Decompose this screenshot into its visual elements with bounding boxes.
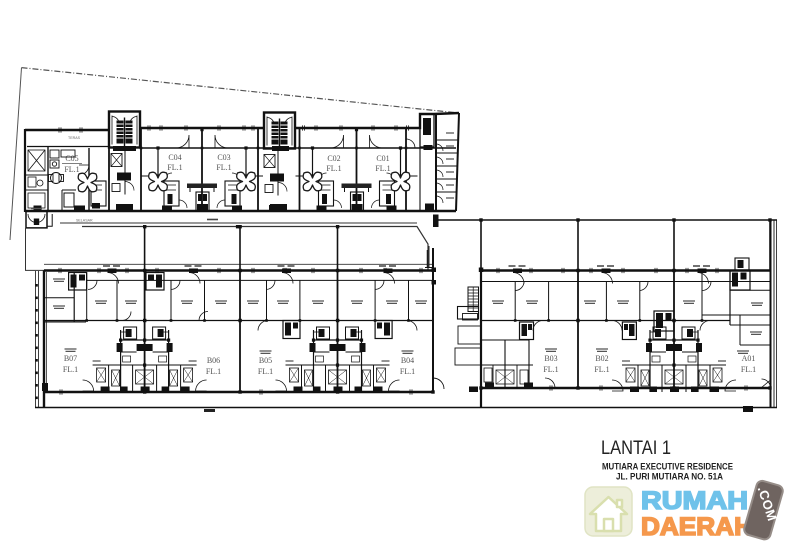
svg-text:B07: B07 xyxy=(64,354,77,363)
svg-text:FL.1: FL.1 xyxy=(594,365,609,374)
svg-text:C02: C02 xyxy=(327,154,340,163)
svg-text:FL.1: FL.1 xyxy=(375,164,390,173)
svg-text:A01: A01 xyxy=(742,354,756,363)
svg-text:FL.1: FL.1 xyxy=(400,367,415,376)
svg-text:FL.1: FL.1 xyxy=(64,165,79,174)
svg-text:TERAS: TERAS xyxy=(68,136,81,140)
svg-text:C05: C05 xyxy=(65,154,78,163)
svg-text:SELASAR: SELASAR xyxy=(76,219,93,223)
svg-text:B03: B03 xyxy=(544,354,557,363)
svg-text:C03: C03 xyxy=(217,153,230,162)
svg-text:B06: B06 xyxy=(207,356,220,365)
svg-text:FL.1: FL.1 xyxy=(543,365,558,374)
svg-text:FL.1: FL.1 xyxy=(741,365,756,374)
svg-text:DAERAH: DAERAH xyxy=(641,513,753,541)
svg-text:JL. PURI MUTIARA NO. 51A: JL. PURI MUTIARA NO. 51A xyxy=(616,472,723,483)
svg-text:LANTAI 1: LANTAI 1 xyxy=(601,438,671,459)
svg-text:B05: B05 xyxy=(259,356,272,365)
svg-text:FL.1: FL.1 xyxy=(216,163,231,172)
svg-text:FL.1: FL.1 xyxy=(326,164,341,173)
svg-text:FL.1: FL.1 xyxy=(206,367,221,376)
svg-text:B04: B04 xyxy=(401,356,414,365)
svg-text:RUMAH: RUMAH xyxy=(641,487,748,515)
svg-text:B02: B02 xyxy=(595,354,608,363)
svg-text:C01: C01 xyxy=(376,154,389,163)
svg-text:FL.1: FL.1 xyxy=(258,367,273,376)
svg-text:FL.1: FL.1 xyxy=(167,163,182,172)
svg-text:FL.1: FL.1 xyxy=(63,365,78,374)
svg-text:C04: C04 xyxy=(168,153,181,162)
